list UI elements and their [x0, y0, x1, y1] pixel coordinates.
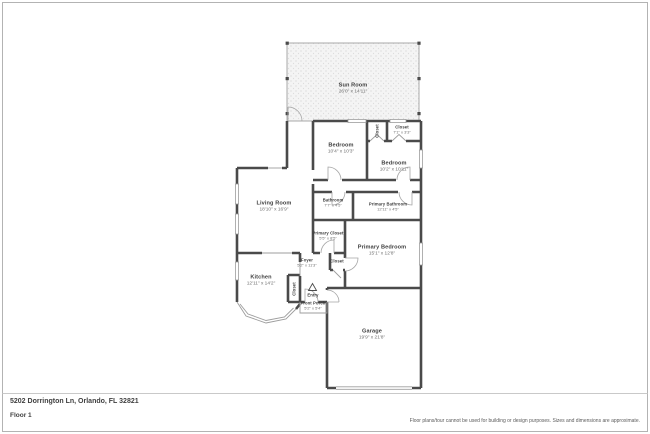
window-living-1: [235, 184, 238, 204]
window-closet-top: [390, 119, 406, 122]
floor-plan-drawing: [0, 0, 650, 434]
window-bedroom-1: [348, 119, 366, 122]
front-porch-outline: [300, 302, 327, 313]
door-garage-entry: [327, 290, 339, 302]
bay-window: [237, 302, 296, 323]
door-primary-closet: [321, 240, 334, 253]
sun-room-area: [287, 43, 419, 121]
door-primary-bedroom: [345, 258, 358, 271]
footer-floor-label: Floor 1: [10, 412, 32, 419]
bay-window-inner: [240, 304, 294, 321]
closet-bifold-door-2: [392, 135, 406, 142]
garage-door: [336, 387, 412, 390]
door-primary-bathroom: [399, 192, 412, 205]
footer-disclaimer: Floor plans/tour cannot be used for buil…: [410, 418, 640, 424]
footer-address: 5202 Dorrington Ln, Orlando, FL 32821: [10, 398, 139, 405]
window-kitchen: [235, 262, 238, 280]
thin-lines: [237, 135, 412, 390]
window-bedroom-2: [419, 150, 422, 168]
window-living-2: [235, 214, 238, 234]
window-primary-bedroom: [419, 243, 422, 265]
closet-bifold-door: [370, 135, 384, 142]
door-bathroom: [332, 192, 345, 205]
door-bedroom-1: [328, 167, 341, 180]
door-bedroom-2: [397, 167, 410, 180]
closet-foyer-door: [333, 270, 341, 278]
floor-plan-page: Sun Room 26'0" x 14'11" Bedroom 10'4" x …: [0, 0, 650, 434]
door-arcs: [288, 107, 412, 302]
walls: [237, 121, 421, 388]
